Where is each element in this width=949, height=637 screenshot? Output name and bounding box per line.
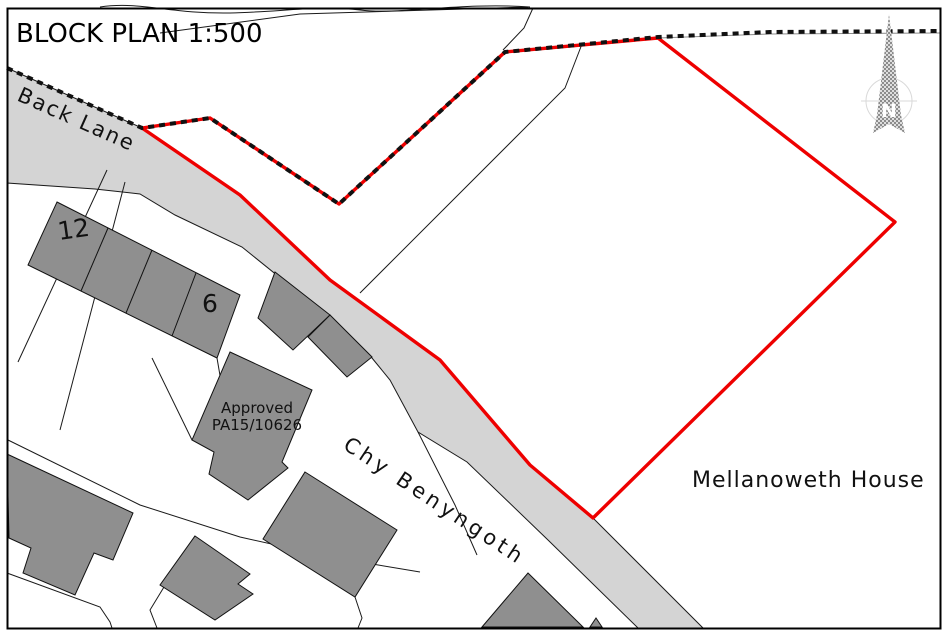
block-plan-canvas: N BLOCK PLAN 1:500 Back Lane 12 6 Approv… <box>0 0 949 637</box>
plot-line-3 <box>152 358 192 440</box>
north-arrow-label: N <box>881 100 897 122</box>
field-line-north <box>503 8 533 50</box>
south-building-1 <box>160 536 253 620</box>
plan-title: BLOCK PLAN 1:500 <box>16 19 263 49</box>
approved-application-line2: PA15/10626 <box>212 416 302 434</box>
block-plan-map: N BLOCK PLAN 1:500 Back Lane 12 6 Approv… <box>0 0 949 637</box>
large-west-building <box>7 454 133 595</box>
south-building-4 <box>590 618 602 627</box>
neighbour-house-label: Mellanoweth House <box>692 468 925 493</box>
house-number-6: 6 <box>202 289 218 318</box>
approved-application-line1: Approved <box>221 399 293 417</box>
plot-line-8 <box>355 597 362 628</box>
house-number-12: 12 <box>56 213 92 246</box>
south-building-3 <box>482 573 583 627</box>
south-building-2 <box>263 472 397 597</box>
